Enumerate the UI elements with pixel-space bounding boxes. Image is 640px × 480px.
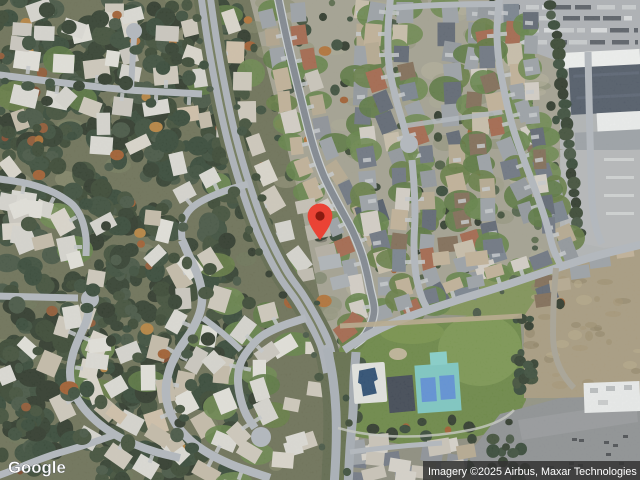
- svg-text:Imagery ©2025 Airbus, Maxar Te: Imagery ©2025 Airbus, Maxar Technologies: [428, 466, 637, 478]
- svg-text:Google: Google: [8, 458, 66, 477]
